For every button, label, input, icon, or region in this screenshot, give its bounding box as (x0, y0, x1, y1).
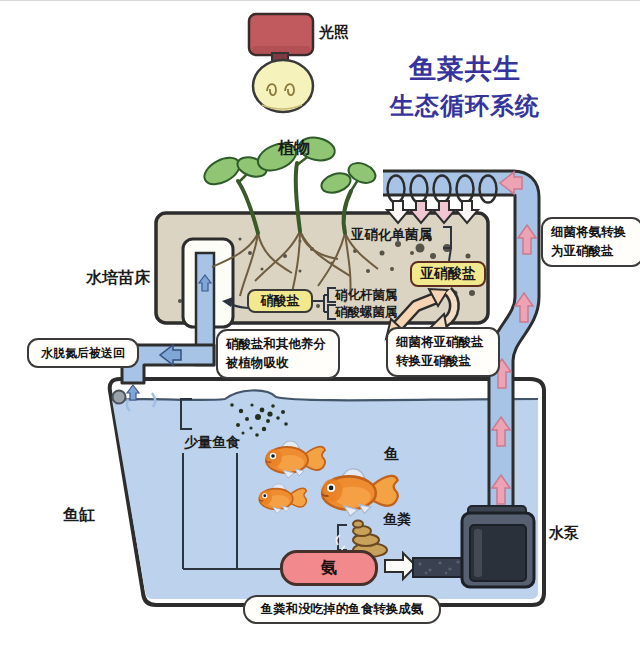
ammonia-convert-line2: 为亚硝酸盐 (551, 242, 633, 261)
rock (113, 391, 126, 404)
fish-food-label: 少量鱼食 (184, 434, 240, 452)
gravel-intake (413, 558, 465, 577)
waste-to-ammonia-callout: 鱼粪和没吃掉的鱼食转换成氨 (243, 595, 441, 624)
bulb-icon (253, 60, 313, 112)
light-label: 光照 (319, 23, 349, 42)
nutrient-absorb-callout: 硝酸盐和其他养分 被植物吸收 (216, 329, 340, 379)
fish-label: 鱼 (384, 445, 399, 464)
ammonia-convert-callout: 细菌将氨转换 为亚硝酸盐 (541, 217, 640, 267)
fish-waste-label: 鱼粪 (383, 511, 411, 529)
nitrate-chip: 硝酸盐 (247, 289, 313, 313)
nitrobacter-label: 硝化杆菌属 (335, 287, 398, 304)
grow-bed-label: 水培苗床 (86, 268, 150, 289)
nitrite-convert-line1: 细菌将亚硝酸盐 (396, 333, 490, 352)
nitrospira-label: 硝酸螺菌属 (335, 304, 398, 321)
ammonia-convert-line1: 细菌将氨转换 (551, 223, 633, 242)
ammonia-pill: 氨 (280, 550, 378, 586)
nitrosomonas-label: 亚硝化单菌属 (351, 226, 432, 244)
plants-label: 植物 (278, 138, 310, 159)
title-line1: 鱼菜共生 (370, 49, 560, 89)
lamp (249, 14, 313, 112)
water-pump (462, 506, 534, 587)
water-pump-label: 水泵 (549, 524, 579, 543)
nutrient-absorb-line1: 硝酸盐和其他养分 (226, 335, 330, 354)
aquaponics-diagram: 鱼菜共生 生态循环系统 光照 植物 水培苗床 亚硝化单菌属 硝化杆菌属 硝酸螺菌… (0, 0, 640, 655)
water-return-callout: 水脱氮后被送回 (27, 338, 139, 368)
page-title: 鱼菜共生 生态循环系统 (370, 49, 560, 123)
nitrite-convert-line2: 转换亚硝酸盐 (396, 352, 490, 371)
title-line2: 生态循环系统 (370, 89, 560, 123)
fish-tank-label: 鱼缸 (63, 505, 95, 526)
nutrient-absorb-line2: 被植物吸收 (226, 354, 330, 373)
nitrite-chip: 亚硝酸盐 (410, 261, 486, 287)
nitrite-convert-callout: 细菌将亚硝酸盐 转换亚硝酸盐 (386, 327, 500, 377)
